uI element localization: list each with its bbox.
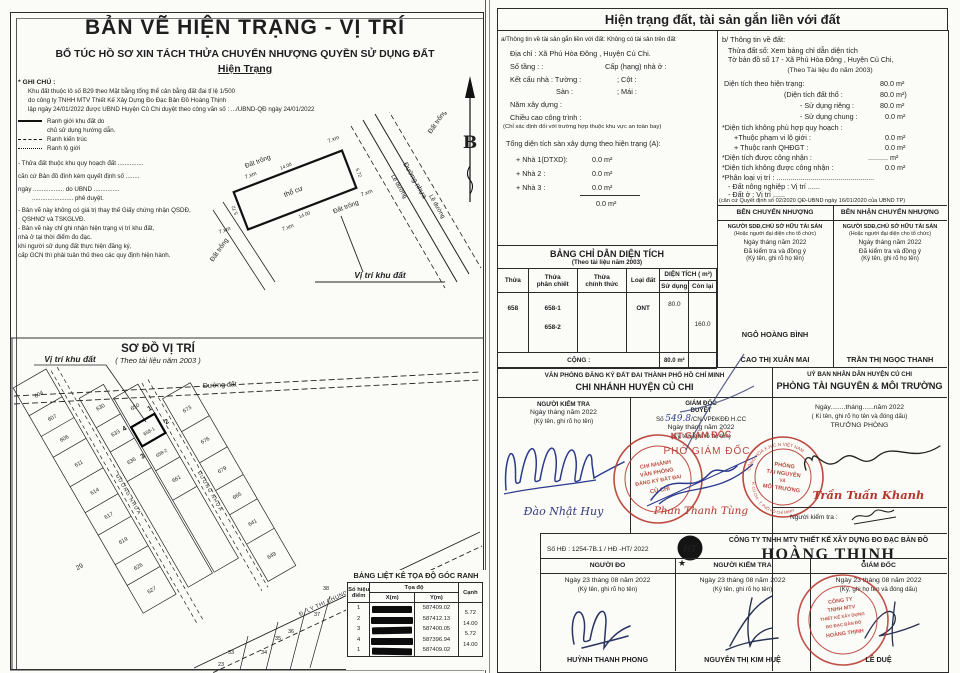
company-header-top	[540, 558, 947, 559]
area-tho-label: (Diện tích đất thổ :	[784, 90, 843, 99]
y-value: 587409.02	[415, 603, 458, 614]
nonconforming-title: *Diện tích không phù hợp quy hoạch :	[722, 123, 843, 132]
land-type-label: thổ cư	[283, 184, 305, 199]
corner-number: 2	[163, 418, 170, 426]
party-subtitle: NGƯỜI SDĐ,CHỦ SỞ HỮU TÀI SẢN	[833, 224, 947, 230]
note-line: Khu đất thuộc lô số B29 theo Mặt bằng tổ…	[18, 88, 348, 97]
h-thua: Thửa	[498, 269, 529, 293]
checker-header: NGƯỜI KIỂM TRA	[675, 562, 810, 569]
office-right-line1: UỶ BAN NHÂN DÂN HUYỆN CỦ CHI	[772, 371, 947, 378]
legend-label: Ranh giới khu đất do	[47, 118, 104, 125]
empty-land-label: Đất trống	[207, 236, 230, 263]
right-page-header: Hiện trạng đất, tài sản gắn liền với đất	[497, 8, 948, 31]
inspector-date: Ngày tháng năm 2022	[497, 409, 630, 416]
floors-line: Số tầng : :	[510, 62, 543, 71]
unrecognized-value: 0.0 m²	[885, 163, 905, 172]
checker-date: Ngày 23 tháng 08 năm 2022	[675, 577, 810, 584]
surveyor-signature	[560, 596, 660, 654]
plot-diagram: Lề đường Đường nhựa Lề đường Đất trống t…	[195, 112, 485, 292]
point-id: 4	[348, 635, 369, 646]
parcel-label: 614	[90, 487, 101, 497]
corner-number: 4	[121, 425, 128, 433]
section-a-title: a/Thông tin về tài sản gắn liền với đất:…	[501, 36, 676, 43]
document-title: BẢN VẼ HIỆN TRẠNG - VỊ TRÍ	[30, 16, 460, 40]
head-office-name: Trần Tuấn Khanh	[790, 488, 947, 502]
house1-label: + Nhà 1(DTXD):	[516, 155, 568, 164]
document-subtitle: BỔ TÚC HỒ SƠ XIN TÁCH THỬA CHUYỂN NHƯỢNG…	[30, 48, 460, 60]
redacted-x-value	[371, 617, 413, 624]
house2-value: 0.0 m²	[592, 169, 612, 178]
qhdgt-label: + Thuộc ranh QHĐGT :	[734, 143, 808, 152]
party-right-header: BÊN NHẬN CHUYỂN NHƯỢNG	[833, 209, 947, 216]
cell-cl: 160.0	[689, 293, 717, 353]
scanned-survey-document: BẢN VẼ HIỆN TRẠNG - VỊ TRÍ BỔ TÚC HỒ SƠ …	[0, 0, 960, 673]
env-office-sign-note: ( Kí tên, ghi rõ họ tên và đóng dấu)	[772, 413, 947, 420]
decision-citation: (căn cứ Quyết định số 02/2020 QĐ-UBND ng…	[719, 198, 905, 204]
inspector-sign-note: (Ký tên, ghi rõ họ tên)	[497, 418, 630, 425]
parcel-label: 661	[171, 475, 182, 485]
legend-label: Ranh kiến trúc	[47, 136, 87, 143]
area-table-top	[497, 245, 717, 246]
checker-signature	[850, 506, 910, 528]
parcel-label: 38	[323, 586, 329, 592]
parcel-label: 619	[118, 536, 129, 546]
col-point-header2: điểm	[348, 593, 369, 599]
map-sheet-line: Tờ bản đồ số 17 - Xã Phú Hòa Đông , Huyệ…	[728, 57, 893, 64]
h-loai: Loại đất	[626, 269, 659, 293]
parcel-label: 636	[126, 457, 137, 467]
office-right-line2: PHÒNG TÀI NGUYÊN & MÔI TRƯỜNG	[772, 381, 947, 391]
plot-caption: Vị trí khu đất	[354, 270, 407, 280]
offices-bottom	[540, 533, 947, 534]
parcel-label: 633	[110, 429, 121, 439]
house1-value: 0.0 m²	[592, 155, 612, 164]
total-rule	[580, 195, 640, 196]
surveyor-date: Ngày 23 tháng 08 năm 2022	[540, 577, 675, 584]
head-of-office-label: TRƯỞNG PHÒNG	[772, 422, 947, 429]
h-sd: Sử dụng	[660, 281, 689, 293]
shared-use-value: 0.0 m²	[885, 112, 905, 121]
coordinate-table-title: BẢNG LIỆT KÊ TỌA ĐỘ GÓC RANH	[346, 571, 486, 580]
shared-use-label: - Sử dụng chung :	[800, 112, 858, 121]
dimension-label: 14.00	[298, 210, 312, 220]
contract-number: Số HĐ : 1254-7B.1 / HĐ -HT/ 2022	[547, 546, 649, 553]
empty-land-label: Đất trống	[332, 197, 361, 215]
address-line: Địa chỉ : Xã Phú Hòa Đông , Huyện Củ Chi…	[510, 49, 651, 58]
cell-pc2: 658-2	[529, 324, 577, 331]
area-current-label: Diện tích theo hiện trạng:	[724, 79, 804, 88]
logo-monogram: HT	[683, 544, 697, 555]
stamp-line: PHÒNG	[774, 460, 795, 471]
point-id: 2	[348, 614, 369, 625]
parcel-label: 35	[275, 636, 281, 642]
note-line: do công ty TNHH MTV Thiết Kế Xây Dựng Đo…	[18, 97, 348, 106]
cell-sd: 80.0	[660, 293, 689, 353]
parcel-label: 36	[288, 629, 294, 635]
tick-label: 7.xm	[281, 223, 295, 233]
redacted-x-value	[371, 638, 413, 645]
stray-pen-stroke	[670, 350, 760, 455]
y-value: 587409.02	[415, 645, 458, 656]
checker-label: Người kiểm tra :	[790, 514, 838, 521]
empty-land-label: Đất trống	[425, 112, 448, 135]
coordinate-table: Số hiệu điểm Tọa độ Cạnh X(m) Y(m) 1 2 3…	[347, 582, 483, 657]
parcel-label: 626	[133, 562, 144, 572]
total-floor-area-value: 0.0 m²	[596, 199, 616, 208]
company-name-line1: CÔNG TY TNHH MTV THIẾT KẾ XÂY DỰNG ĐO ĐẠ…	[710, 537, 947, 544]
parcel-label: 34	[261, 650, 267, 656]
company-left-border	[540, 533, 541, 671]
parcel-label: 33	[228, 650, 234, 656]
doc-no-prefix: Số	[656, 416, 664, 423]
stamp-line: ĐO ĐẠC BẢN ĐỒ	[826, 619, 863, 629]
tick-label: 7.xm	[244, 171, 258, 181]
company-stamp: CÔNG TY TNHH MTV THIẾT KẾ XÂY DỰNG ĐO ĐẠ…	[795, 572, 891, 668]
point-id: 1	[348, 603, 369, 614]
h-ct2: chính thức	[578, 281, 626, 288]
cell-loai: ONT	[626, 293, 659, 353]
parcel-number-line: Thửa đất số: Xem bảng chỉ dẫn diện tích	[728, 46, 858, 55]
house-grade-line: Cấp (hạng) nhà ở :	[605, 62, 667, 71]
legend-label: Ranh lộ giới	[47, 145, 80, 152]
area-tho-value: 80.0 m²)	[880, 90, 907, 99]
recognized-label: *Diện tích được công nhận :	[722, 153, 812, 162]
parcel-label: 611	[74, 459, 85, 469]
qhdgt-value: 0.0 m²	[885, 143, 905, 152]
section-b-title: b/ Thông tin về đất:	[722, 35, 785, 44]
map-year-line: (Theo Tài liệu đo năm 2003)	[740, 67, 920, 74]
notes-title: * GHI CHÚ :	[18, 78, 348, 88]
inspector-signature	[500, 428, 628, 500]
height-line: Chiều cao công trình :	[510, 113, 581, 122]
h-ct1: Thửa	[578, 274, 626, 281]
document-subtitle2: Hiện Trạng	[30, 63, 460, 75]
party-sign-note: (Ký tên, ghi rõ họ tên)	[717, 256, 833, 262]
surveyor-name: HUỲNH THANH PHONG	[540, 655, 675, 664]
party-subtitle: NGƯỜI SDĐ,CHỦ SỞ HỮU TÀI SẢN	[717, 224, 833, 230]
aviation-note: (Chỉ xác định đối với trường hợp thuộc k…	[503, 124, 661, 130]
parcel-label: 641	[247, 518, 258, 528]
parcel-label: 29	[75, 562, 85, 572]
site-plan-subtitle: ( Theo tài liệu năm 2003 )	[115, 356, 201, 365]
surveyor-sign-note: (Ký tên, ghi rõ họ tên)	[540, 586, 675, 593]
h-dt: DIỆN TÍCH ( m²)	[660, 269, 717, 281]
cell-pc1: 658-1	[529, 305, 577, 312]
surveyor-header: NGƯỜI ĐO	[540, 562, 675, 569]
transferor-name: NGÔ HOÀNG BÌNH	[717, 330, 833, 339]
parcel-label: 630	[95, 403, 106, 413]
h-pc2: phân chiết	[529, 281, 577, 288]
head-office-signature	[800, 430, 945, 485]
roof-line: ; Mái :	[617, 87, 637, 96]
inspector-header: NGƯỜI KIỂM TRA	[497, 401, 630, 408]
company-director-name: LÊ DUỆ	[810, 655, 947, 664]
structure-line: Kết cấu nhà : Tường :	[510, 75, 581, 84]
env-office-date: Ngày........tháng......năm 2022	[772, 404, 947, 411]
recognized-value: .......... m²	[868, 153, 898, 162]
unrecognized-label: *Diện tích không được công nhận :	[722, 163, 833, 172]
position-class-line: *Phân loại vị trí : ....................…	[722, 173, 874, 182]
redacted-x-value	[372, 627, 412, 635]
party-subtitle: (Hoặc người đại diện cho tổ chức)	[833, 231, 947, 237]
private-use-value: 80.0 m²	[880, 101, 904, 110]
parcel-label: 665	[232, 492, 243, 502]
transferee-name: TRẦN THỊ NGỌC THANH	[833, 355, 947, 364]
stamp-line: VÀ	[779, 477, 787, 484]
point-id: 3	[348, 624, 369, 635]
structure-line2: ; Cột :	[617, 75, 636, 84]
parcel-label: 23	[218, 662, 224, 668]
tick-label: 7.xm	[360, 188, 374, 198]
parcel-label: 607	[47, 413, 58, 423]
parcel-label: 673	[182, 405, 193, 415]
col-point-header: Số hiệu	[348, 587, 369, 593]
parties-header-bottom	[717, 220, 947, 221]
cell-thua: 658	[498, 293, 529, 353]
road-label: Đường đất	[203, 379, 237, 390]
col-x-header: X(m)	[370, 593, 415, 603]
legend-dot-line-icon	[18, 148, 42, 149]
director-col-header: GIÁM ĐỐC	[810, 562, 947, 569]
party-sign-note: (Ký tên, ghi rõ họ tên)	[833, 256, 947, 262]
party-left-header: BÊN CHUYỂN NHƯỢNG	[717, 209, 833, 216]
side-length: 14.00	[459, 619, 482, 630]
h-cl: Còn lại	[689, 281, 717, 293]
col-coord-header: Tọa độ	[370, 583, 458, 593]
parcel-label: 650	[130, 403, 141, 413]
col-y-header: Y(m)	[415, 593, 459, 603]
parcel-label: 649	[266, 551, 277, 561]
y-value: 587412.13	[415, 614, 458, 625]
party-date: Ngày tháng năm 2022	[717, 239, 833, 246]
checker-name: NGUYỄN THỊ KIM HUỆ	[675, 655, 810, 664]
legend-solid-line-icon	[18, 120, 42, 122]
area-table-title: BẢNG CHỈ DẪN DIỆN TÍCH	[497, 249, 717, 259]
floor-line: Sàn :	[556, 87, 573, 96]
parcel-label: 617	[104, 511, 115, 521]
parcel-label: 676	[200, 436, 211, 446]
point-id: 1	[348, 645, 369, 656]
house2-label: + Nhà 2 :	[516, 169, 545, 178]
stamp-line: HOÀNG THỊNH	[826, 627, 865, 639]
parcel-label: 658-1	[143, 426, 157, 437]
dimension-label: 5.72	[354, 167, 363, 178]
pointer-label: Vị trí khu đất	[44, 354, 97, 364]
col-side-header: Cạnh	[458, 583, 482, 603]
house3-label: + Nhà 3 :	[516, 183, 545, 192]
side-length: 5.72	[459, 629, 482, 640]
road-corridor-value: 0.0 m²	[885, 133, 905, 142]
parcel-label: 627	[147, 586, 158, 596]
party-agree: Đã kiểm tra và đồng ý	[717, 248, 833, 255]
parcel-label: 658-2	[155, 448, 169, 459]
private-use-label: - Sử dụng riêng :	[800, 101, 854, 110]
area-table-subtitle: (Theo tài liệu năm 2003)	[497, 259, 717, 266]
area-current-value: 80.0 m²	[880, 79, 904, 88]
column-divider	[717, 30, 718, 367]
cell-ct	[577, 293, 626, 353]
road-corridor-label: +Thuộc phạm vi lộ giới :	[734, 133, 811, 142]
total-floor-area-title: Tổng diện tích sàn xây dựng theo hiện tr…	[506, 139, 661, 148]
road-label: Đ. LÝ THỊ CHUNG	[298, 589, 349, 618]
h-pc1: Thửa	[529, 274, 577, 281]
side-length: 5.72	[459, 603, 482, 619]
party-date: Ngày tháng năm 2022	[833, 239, 947, 246]
party-subtitle: (Hoặc người đại diện cho tổ chức)	[717, 231, 833, 237]
redacted-x-value	[372, 648, 412, 656]
parcel-label: 604	[34, 390, 45, 400]
party-agree: Đã kiểm tra và đồng ý	[833, 248, 947, 255]
site-plan-title: SƠ ĐỒ VỊ TRÍ	[121, 342, 196, 355]
parties-table-top	[717, 205, 947, 206]
parcel-label: 606	[59, 434, 70, 444]
redacted-x-value	[372, 606, 412, 613]
checker-signature-2	[700, 590, 800, 654]
legend-dash-line-icon	[18, 139, 42, 140]
y-value: 587396.94	[415, 635, 458, 646]
coordinate-table-block: BẢNG LIỆT KÊ TỌA ĐỘ GÓC RANH Số hiệu điể…	[346, 570, 486, 670]
side-length: 14.00	[459, 640, 482, 651]
y-value: 587400.05	[415, 624, 458, 635]
house3-value: 0.0 m²	[592, 183, 612, 192]
parcel-label: 679	[217, 466, 228, 476]
parcel-label: 37	[314, 612, 320, 618]
empty-land-label: Đất trống	[243, 152, 272, 170]
tick-label: 7.xm	[327, 135, 341, 145]
year-built-line: Năm xây dựng :	[510, 100, 562, 109]
tick-label: 7.xm	[218, 226, 232, 236]
